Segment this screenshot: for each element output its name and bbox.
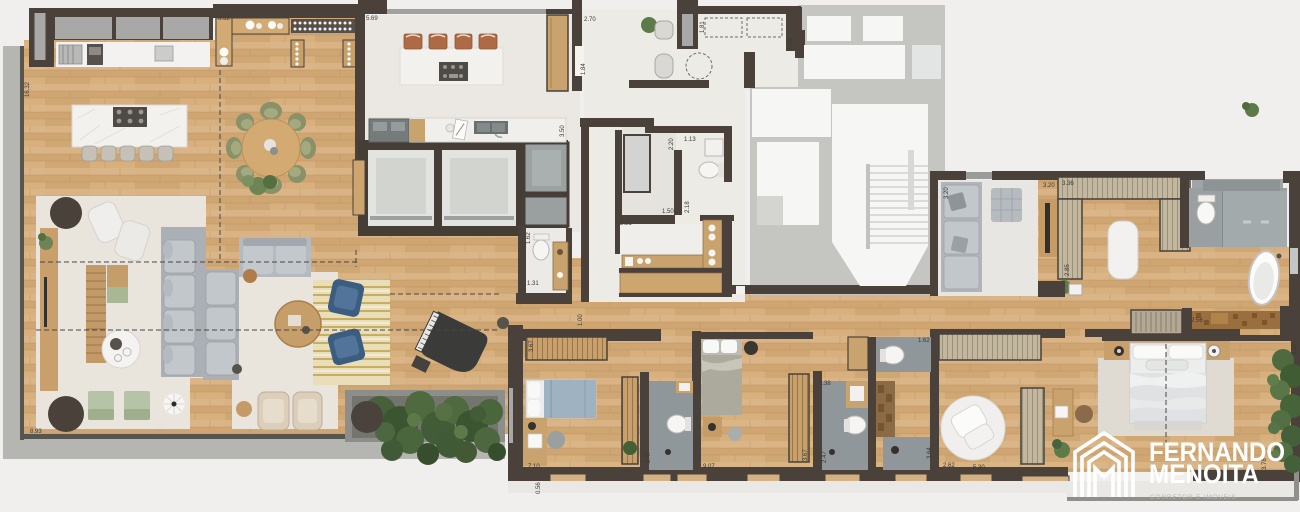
svg-text:1.13: 1.13 (684, 137, 696, 143)
svg-text:2.70: 2.70 (584, 17, 596, 23)
svg-text:0.56: 0.56 (536, 482, 542, 494)
svg-text:7.10: 7.10 (528, 464, 540, 470)
svg-text:1.81: 1.81 (700, 21, 706, 33)
svg-text:1.01: 1.01 (788, 38, 794, 50)
svg-text:1.00: 1.00 (578, 314, 584, 326)
svg-text:1.62: 1.62 (526, 232, 532, 244)
svg-text:1.31: 1.31 (527, 281, 539, 287)
svg-text:3.50: 3.50 (560, 125, 566, 137)
svg-text:2.85: 2.85 (1065, 264, 1071, 276)
svg-text:16.32: 16.32 (25, 81, 31, 97)
svg-text:5.30: 5.30 (973, 465, 985, 471)
svg-text:1.50: 1.50 (662, 209, 674, 215)
svg-text:2.47: 2.47 (646, 451, 652, 463)
svg-text:3.20: 3.20 (1043, 183, 1055, 189)
svg-text:3.67: 3.67 (803, 449, 809, 461)
svg-text:2.62: 2.62 (943, 463, 955, 469)
svg-text:3.20: 3.20 (944, 187, 950, 199)
svg-text:1.84: 1.84 (581, 63, 587, 75)
svg-text:3.64: 3.64 (927, 447, 933, 459)
svg-text:2.18: 2.18 (685, 201, 691, 213)
svg-text:3.67: 3.67 (529, 340, 535, 352)
svg-text:2.47: 2.47 (822, 451, 828, 463)
svg-text:2.81: 2.81 (620, 221, 632, 227)
svg-text:9.07: 9.07 (703, 464, 715, 470)
svg-text:3.50: 3.50 (1292, 343, 1298, 355)
svg-text:8.93: 8.93 (30, 429, 42, 435)
svg-text:2.20: 2.20 (669, 138, 675, 150)
svg-text:1.62: 1.62 (918, 338, 930, 344)
svg-text:3.52: 3.52 (218, 16, 230, 22)
svg-text:CORRETOR E IMOVEIS: CORRETOR E IMOVEIS (1150, 494, 1237, 501)
svg-text:5.69: 5.69 (366, 16, 378, 22)
svg-text:1.38: 1.38 (819, 381, 831, 387)
svg-text:3.36: 3.36 (1062, 181, 1074, 187)
svg-text:MENOITA: MENOITA (1149, 459, 1259, 489)
svg-text:2.56: 2.56 (1191, 318, 1203, 324)
